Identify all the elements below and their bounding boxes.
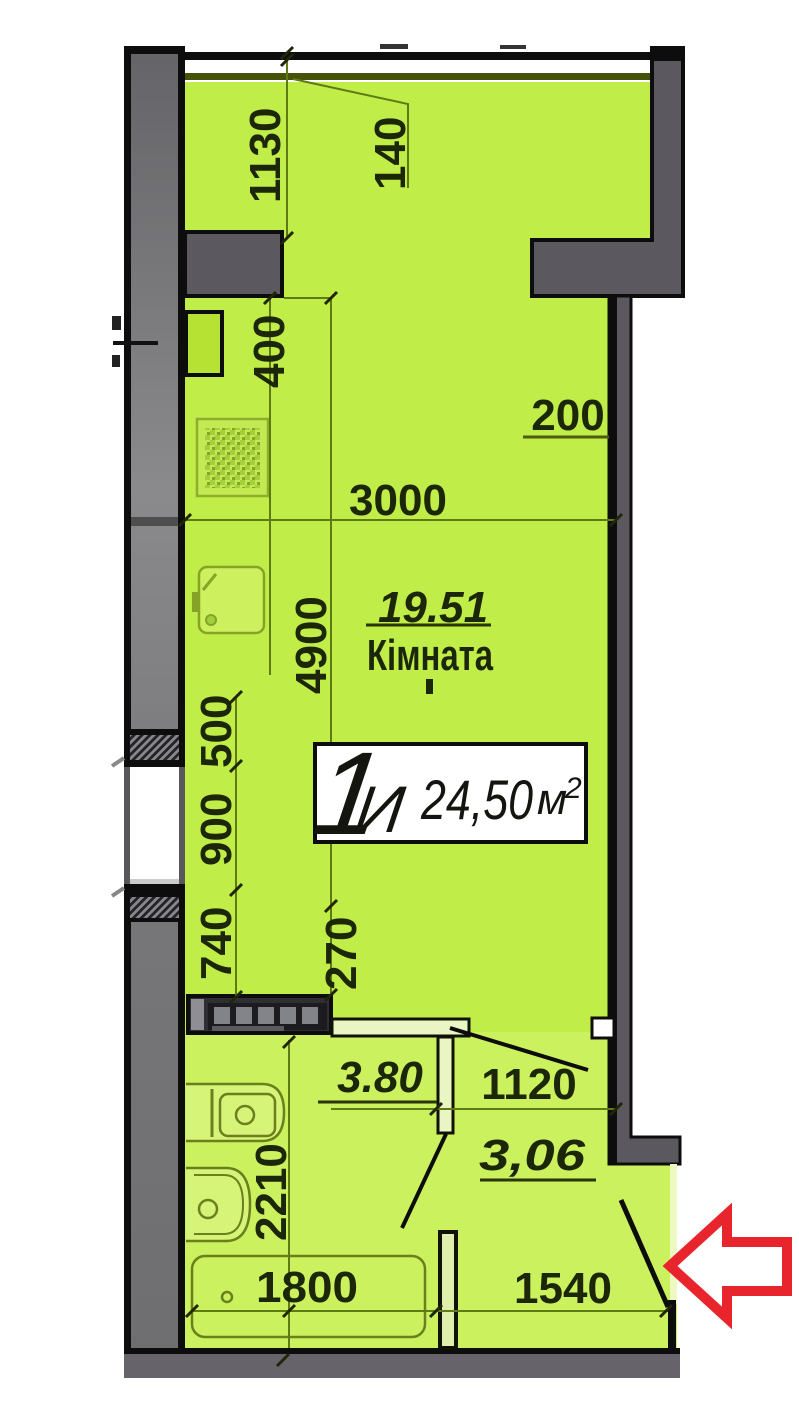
svg-text:270: 270 <box>317 917 366 990</box>
svg-text:1130: 1130 <box>241 108 290 203</box>
svg-text:3,06: 3,06 <box>479 1131 586 1180</box>
svg-text:140: 140 <box>366 117 415 190</box>
svg-text:1540: 1540 <box>514 1264 612 1313</box>
svg-text:400: 400 <box>245 315 294 388</box>
svg-text:500: 500 <box>192 695 241 768</box>
svg-text:2: 2 <box>564 772 582 805</box>
svg-text:3.80: 3.80 <box>337 1053 423 1102</box>
svg-text:3000: 3000 <box>349 476 447 525</box>
svg-text:900: 900 <box>192 793 241 866</box>
svg-text:1800: 1800 <box>256 1263 358 1312</box>
svg-text:1120: 1120 <box>481 1060 576 1109</box>
svg-text:24,50: 24,50 <box>420 768 533 831</box>
svg-text:740: 740 <box>192 907 241 980</box>
svg-text:200: 200 <box>531 391 604 440</box>
svg-text:м: м <box>537 775 567 824</box>
svg-text:2210: 2210 <box>247 1143 296 1241</box>
svg-text:4900: 4900 <box>287 596 336 694</box>
svg-text:Кімната: Кімната <box>367 631 493 680</box>
